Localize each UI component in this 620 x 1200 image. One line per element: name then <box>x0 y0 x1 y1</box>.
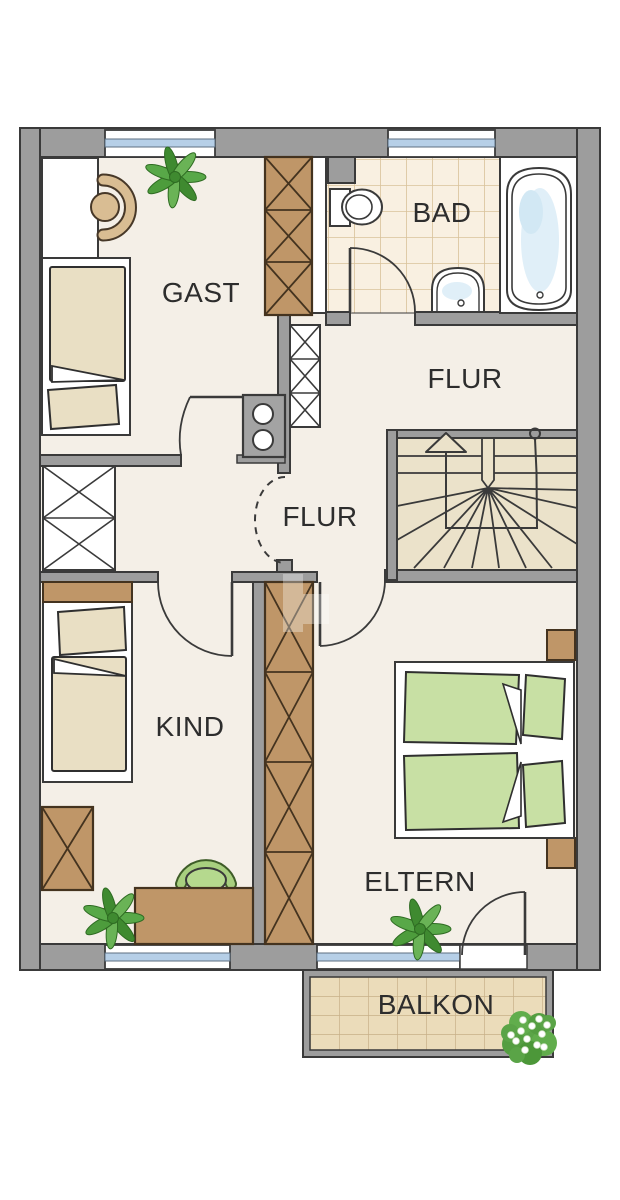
toilet-icon <box>330 189 382 226</box>
room-label-flur-top: FLUR <box>427 363 502 394</box>
chimney-shaft <box>237 395 285 463</box>
wall-stairs-west <box>387 430 397 580</box>
balcony-door-threshold <box>460 945 527 969</box>
cabinet-kind <box>42 807 93 890</box>
floor-plan-drawing: GAST BAD FLUR FLUR KIND ELTERN BALKON <box>0 0 620 1200</box>
kind-desk <box>135 888 253 944</box>
pillow <box>523 675 565 739</box>
kind-bed <box>43 582 132 782</box>
room-label-flur-mitte: FLUR <box>282 501 357 532</box>
wall-gast-south <box>40 455 181 466</box>
pillow <box>523 761 565 827</box>
room-label-bad: BAD <box>412 197 471 228</box>
chimney-flue-icon <box>253 404 273 424</box>
pillow <box>58 607 126 655</box>
window-gast <box>105 130 215 157</box>
wardrobe-gast <box>265 157 312 315</box>
room-label-eltern: ELTERN <box>364 866 475 897</box>
eltern-nightstand <box>547 630 575 660</box>
bathtub-icon <box>500 157 577 313</box>
wall-kind-north-right <box>232 572 317 582</box>
room-label-balkon: BALKON <box>378 989 495 1020</box>
headboard <box>43 582 132 602</box>
eltern-double-bed <box>395 662 574 838</box>
duvet <box>50 267 125 381</box>
wall-eltern-north <box>385 570 577 582</box>
window-kind <box>105 945 230 969</box>
outer-wall-left <box>20 128 40 970</box>
floor-plan-page: GAST BAD FLUR FLUR KIND ELTERN BALKON <box>0 0 620 1200</box>
chimney-flue-icon <box>253 430 273 450</box>
gast-desk <box>42 158 98 258</box>
cabinet-mittelflur-shelf <box>43 466 115 570</box>
stairwell-floor <box>397 438 577 570</box>
outer-wall-right <box>577 128 600 970</box>
wall-kind-eltern-divider <box>253 582 265 944</box>
wardrobe-kind-eltern <box>265 582 313 944</box>
mattress <box>404 753 519 830</box>
room-label-kind: KIND <box>156 711 225 742</box>
room-label-gast: GAST <box>162 277 240 308</box>
eltern-nightstand <box>547 838 575 868</box>
window-bad <box>388 130 495 157</box>
wall-gast-bad-partition <box>312 157 326 313</box>
sink-icon <box>432 268 484 312</box>
cabinet-flur-shelf <box>290 325 320 427</box>
wall-bad-south-left <box>326 312 350 325</box>
mattress <box>404 672 519 744</box>
wall-block-bad <box>328 157 355 183</box>
pillow <box>48 385 119 429</box>
wall-stairs-north <box>387 430 577 438</box>
gast-bed <box>42 258 130 435</box>
wall-kind-north-left <box>40 572 158 582</box>
